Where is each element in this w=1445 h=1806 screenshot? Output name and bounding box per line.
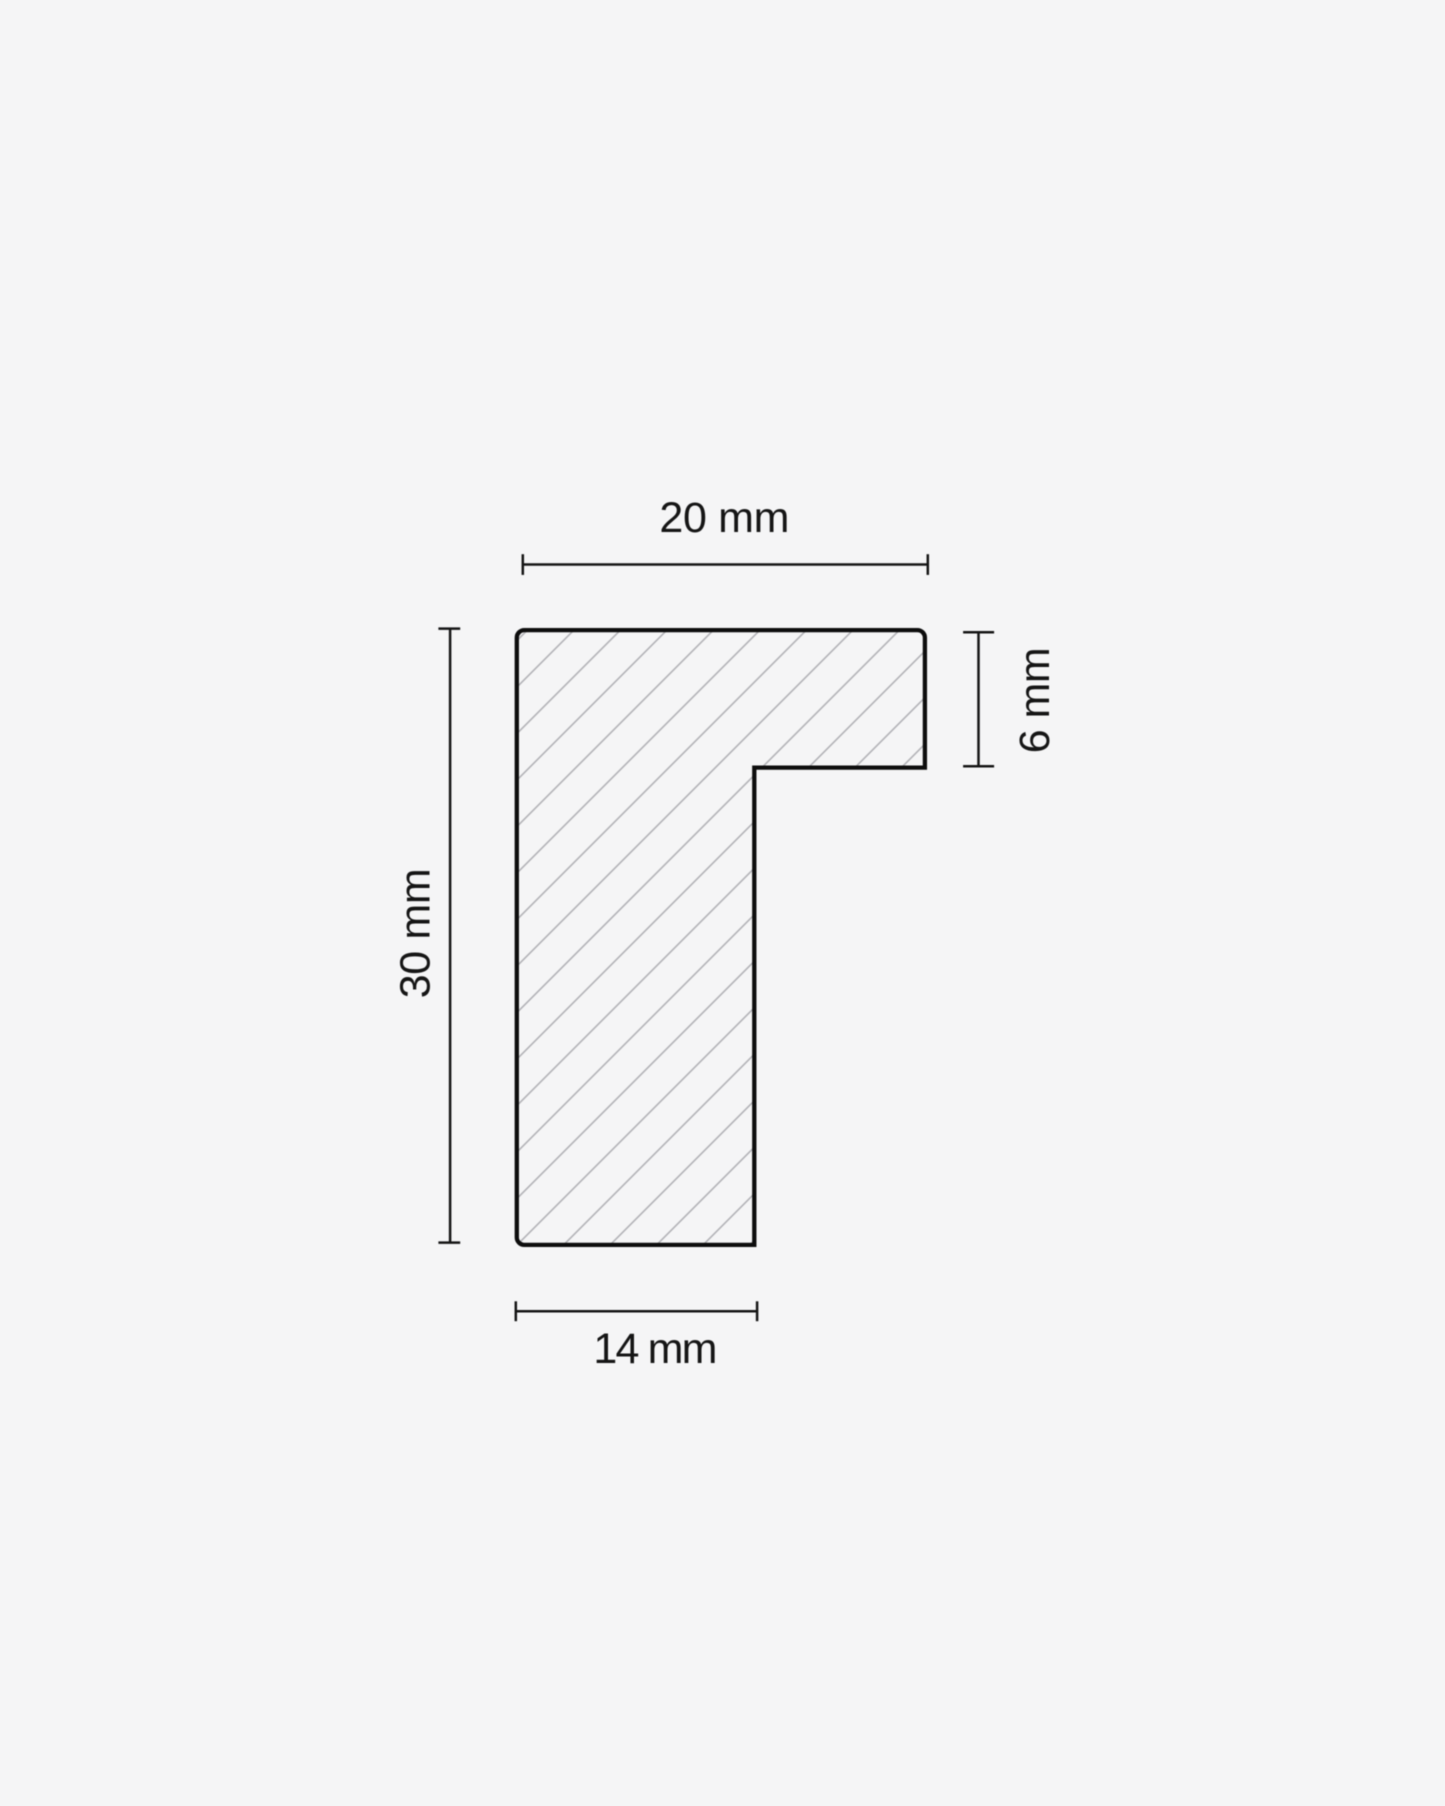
svg-text:14 mm: 14 mm [593, 1325, 717, 1373]
svg-text:30 mm: 30 mm [391, 868, 439, 998]
svg-text:20 mm: 20 mm [659, 494, 789, 542]
svg-text:6 mm: 6 mm [1011, 647, 1059, 753]
